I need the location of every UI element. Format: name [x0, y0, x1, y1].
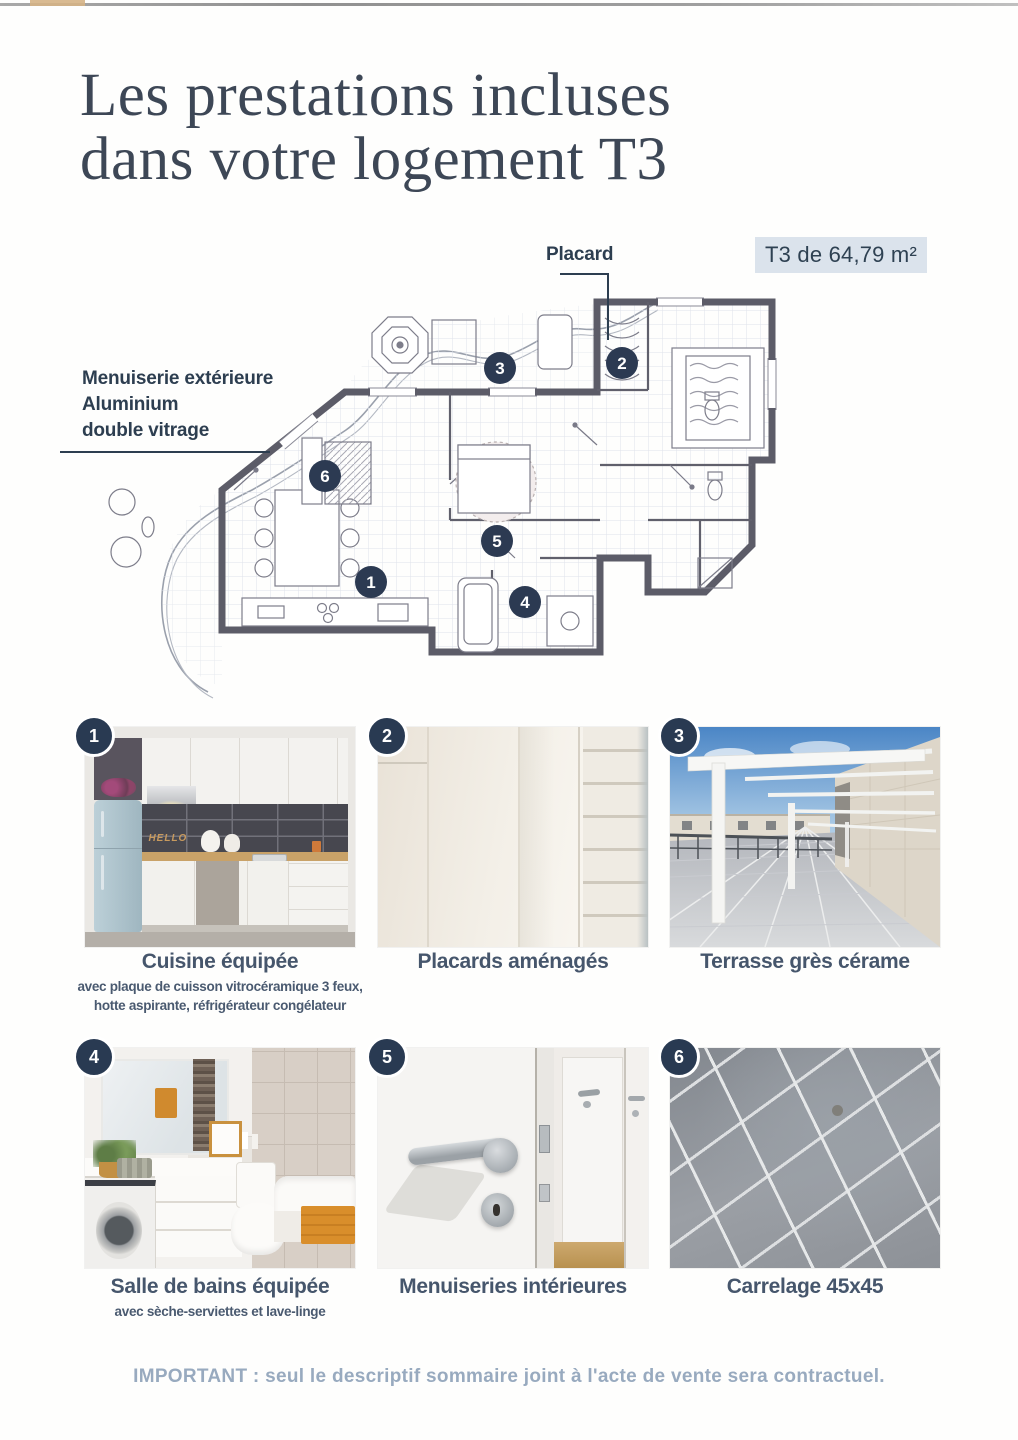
caption-bathroom: Salle de bains équipée [70, 1275, 370, 1299]
caption-closets: Placards aménagés [363, 950, 663, 974]
photo-closet [378, 727, 648, 947]
svg-text:1: 1 [366, 573, 375, 592]
terrace-tiles-left [162, 490, 222, 684]
menuiserie-line-3: double vitrage [82, 420, 209, 441]
caption-kitchen: Cuisine équipée [70, 950, 370, 974]
svg-text:5: 5 [492, 532, 501, 551]
subcaption-bathroom: avec sèche-serviettes et lave-linge [65, 1302, 375, 1321]
menuiserie-line-2: Aluminium [82, 394, 178, 415]
subcaption-kitchen: avec plaque de cuisson vitrocéramique 3 … [65, 977, 375, 1015]
caption-interior-joinery: Menuiseries intérieures [363, 1275, 663, 1299]
scan-edge-line [0, 3, 1018, 6]
hello-sign: HELLO [148, 833, 187, 844]
photo-door-handle [378, 1048, 648, 1268]
photo-badge-5: 5 [366, 1036, 408, 1078]
flowers [101, 778, 136, 798]
svg-text:2: 2 [617, 354, 626, 373]
photo-kitchen: HELLO [85, 727, 355, 947]
photo-bathroom [85, 1048, 355, 1268]
photo-badge-4: 4 [73, 1036, 115, 1078]
page-title: Les prestations inclusesdans votre logem… [80, 64, 671, 192]
photo-floor-tiles [670, 1048, 940, 1268]
svg-text:6: 6 [320, 467, 329, 486]
caption-terrace: Terrasse grès cérame [655, 950, 955, 974]
footer-note: IMPORTANT : seul le descriptif sommaire … [0, 1366, 1018, 1388]
brochure-page: Les prestations inclusesdans votre logem… [0, 0, 1018, 1440]
picture-frame [209, 1121, 242, 1158]
plan-marker-1: 1 [355, 566, 387, 598]
photo-badge-6: 6 [658, 1036, 700, 1078]
terrace-graphic [670, 727, 940, 947]
title-line-2: dans votre logement T3 [80, 126, 668, 193]
caption-tiling: Carrelage 45x45 [655, 1275, 955, 1299]
plan-marker-2: 2 [606, 347, 638, 379]
photo-badge-2: 2 [366, 715, 408, 757]
title-line-1: Les prestations incluses [80, 62, 671, 129]
photo-badge-3: 3 [658, 715, 700, 757]
plan-marker-3: 3 [484, 352, 516, 384]
svg-text:3: 3 [495, 359, 504, 378]
photo-badge-1: 1 [73, 715, 115, 757]
floor-plan-drawing: 3 2 6 5 1 4 [60, 240, 800, 700]
menuiserie-line-1: Menuiserie extérieure [82, 368, 273, 389]
orange-towel [301, 1206, 355, 1243]
background-door [562, 1057, 623, 1244]
kettle [201, 830, 220, 852]
plan-marker-6: 6 [309, 460, 341, 492]
photo-terrace [670, 727, 940, 947]
svg-text:4: 4 [520, 593, 530, 612]
scan-corner-artifact [30, 0, 85, 6]
plan-marker-4: 4 [509, 586, 541, 618]
floor-plan: 3 2 6 5 1 4 Placard Menuiserie extérieur… [60, 240, 800, 700]
plan-marker-5: 5 [481, 525, 513, 557]
placard-label: Placard [546, 242, 613, 268]
menuiserie-label: Menuiserie extérieure Aluminium double v… [82, 366, 273, 444]
